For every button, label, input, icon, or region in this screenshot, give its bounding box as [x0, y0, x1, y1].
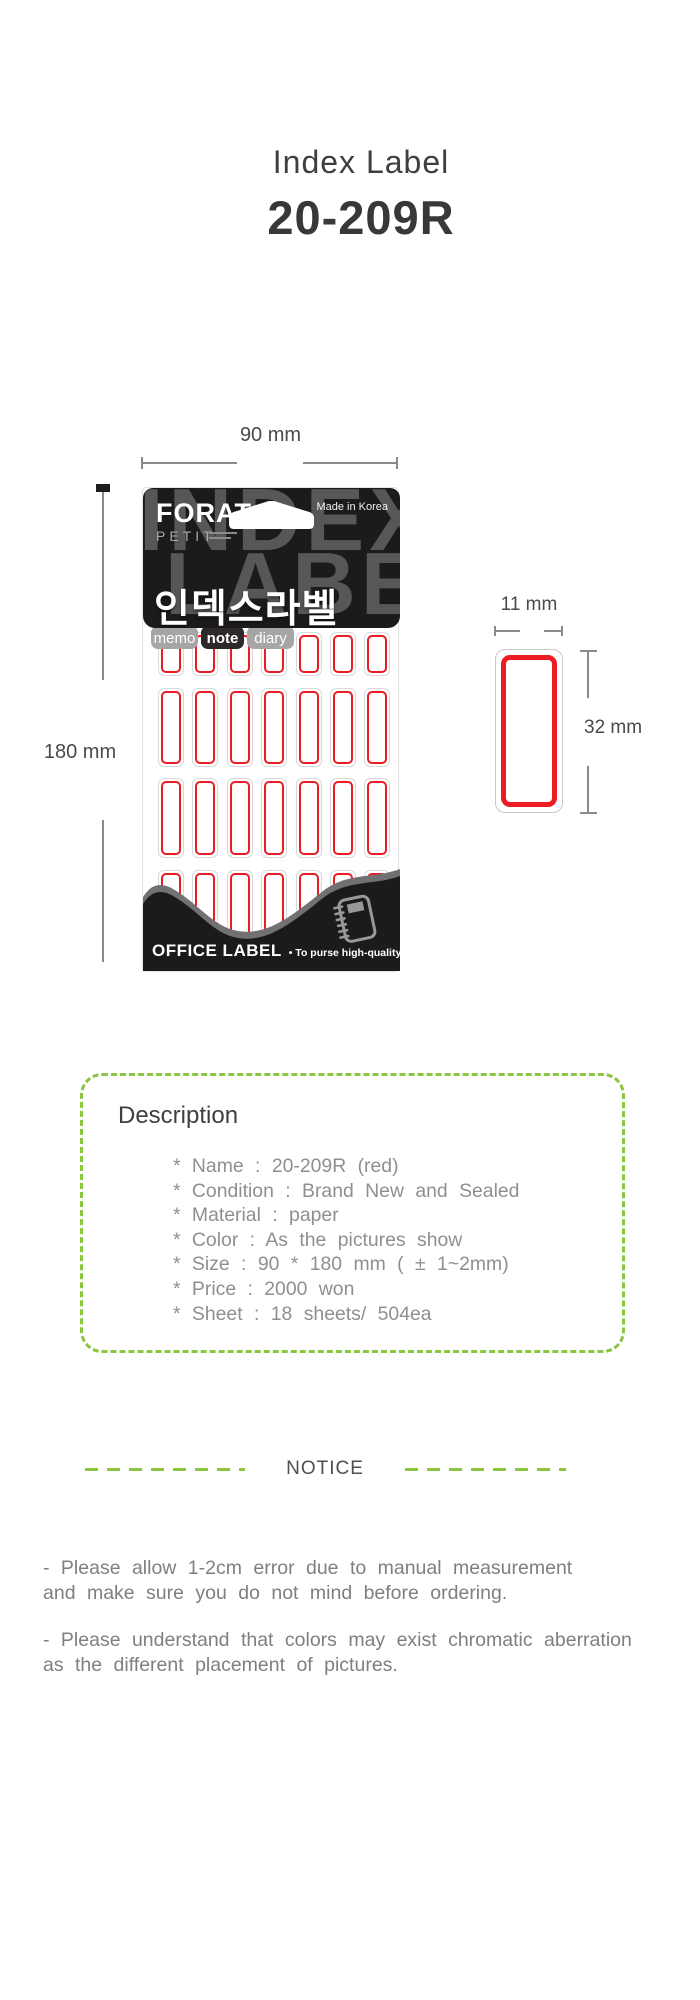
description-item: * Material : paper: [173, 1203, 519, 1228]
fine-print-line: [209, 532, 237, 534]
single-label-diagram: [495, 649, 563, 813]
notice-paragraph: - Please allow 1-2cm error due to manual…: [43, 1556, 673, 1606]
grid-label-red-frame: [264, 691, 284, 764]
label-width-dimension: 11 mm: [487, 594, 571, 616]
dimension-tick: [494, 626, 496, 636]
tab-memo: memo: [151, 626, 198, 649]
description-item: * Price : 2000 won: [173, 1277, 519, 1302]
width-dimension-line: [142, 462, 237, 464]
grid-label-red-frame: [333, 691, 353, 764]
product-package: memonotediary INDEX LABEL FORAT PETIT Ma…: [142, 487, 399, 972]
brand-sub-logo: PETIT: [156, 528, 216, 544]
description-item: * Sheet : 18 sheets/ 504ea: [173, 1302, 519, 1327]
grid-label: [261, 688, 287, 767]
page-title: Index Label: [0, 144, 700, 181]
grid-label-red-frame: [333, 635, 353, 673]
korean-product-title: 인덱스라벨: [154, 578, 338, 628]
grid-label-red-frame: [367, 691, 387, 764]
label-height-line: [587, 766, 589, 812]
grid-label: [364, 688, 390, 767]
product-page: Index Label 20-209R 90 mm 180 mm memonot…: [0, 0, 700, 2000]
label-height-line: [587, 652, 589, 698]
grid-label-red-frame: [195, 691, 215, 764]
tab-diary: diary: [247, 626, 294, 649]
dimension-tick: [141, 457, 143, 469]
footer-tagline: • To purse high-quality labels.: [289, 947, 437, 959]
height-dimension-line: [102, 820, 104, 962]
grid-label: [330, 632, 356, 676]
height-dimension-label: 180 mm: [36, 741, 124, 764]
grid-label-red-frame: [161, 691, 181, 764]
grid-label-red-frame: [299, 635, 319, 673]
notice-line: and make sure you do not mind before ord…: [43, 1581, 673, 1606]
dimension-cap: [580, 812, 597, 814]
package-header: INDEX LABEL FORAT PETIT Made in Korea 인덱…: [143, 488, 400, 628]
description-items: * Name : 20-209R (red)* Condition : Bran…: [173, 1154, 519, 1326]
notice-paragraph: - Please understand that colors may exis…: [43, 1628, 673, 1678]
single-label-red-frame: [501, 655, 557, 807]
description-item: * Name : 20-209R (red): [173, 1154, 519, 1179]
label-width-line: [495, 630, 520, 632]
description-item: * Color : As the pictures show: [173, 1228, 519, 1253]
dimension-tick: [396, 457, 398, 469]
dimension-tick: [561, 626, 563, 636]
description-item: * Condition : Brand New and Sealed: [173, 1179, 519, 1204]
grid-label: [158, 688, 184, 767]
footer-brand: OFFICE LABEL: [152, 941, 282, 960]
package-tabs: memonotediary: [151, 626, 297, 649]
model-number: 20-209R: [0, 190, 700, 245]
fine-print-line: [209, 537, 231, 539]
dimension-cap: [96, 484, 110, 492]
tab-note: note: [201, 626, 244, 649]
notice-paragraphs: - Please allow 1-2cm error due to manual…: [43, 1556, 673, 1678]
made-in-label: Made in Korea: [316, 501, 388, 513]
description-heading: Description: [118, 1102, 238, 1130]
notice-line: as the different placement of pictures.: [43, 1653, 673, 1678]
grid-label-red-frame: [367, 635, 387, 673]
grid-label-red-frame: [299, 691, 319, 764]
grid-label: [296, 688, 322, 767]
hang-tab-shape: [229, 501, 314, 529]
width-dimension-label: 90 mm: [142, 424, 399, 447]
notice-dash-right: [405, 1468, 566, 1471]
description-item: * Size : 90 * 180 mm ( ± 1~2mm): [173, 1252, 519, 1277]
notice-dash-left: [85, 1468, 245, 1471]
width-dimension-line: [303, 462, 398, 464]
grid-label: [330, 688, 356, 767]
grid-label-red-frame: [230, 691, 250, 764]
grid-label: [364, 632, 390, 676]
notice-heading: NOTICE: [245, 1458, 405, 1480]
grid-label: [227, 688, 253, 767]
grid-label: [192, 688, 218, 767]
grid-label: [296, 632, 322, 676]
notice-line: - Please understand that colors may exis…: [43, 1628, 673, 1653]
notice-line: - Please allow 1-2cm error due to manual…: [43, 1556, 673, 1581]
height-dimension-line: [102, 492, 104, 680]
description-box: Description * Name : 20-209R (red)* Cond…: [80, 1073, 625, 1353]
package-footer: OFFICE LABEL• To purse high-quality labe…: [152, 941, 437, 961]
label-height-dimension: 32 mm: [584, 717, 642, 739]
